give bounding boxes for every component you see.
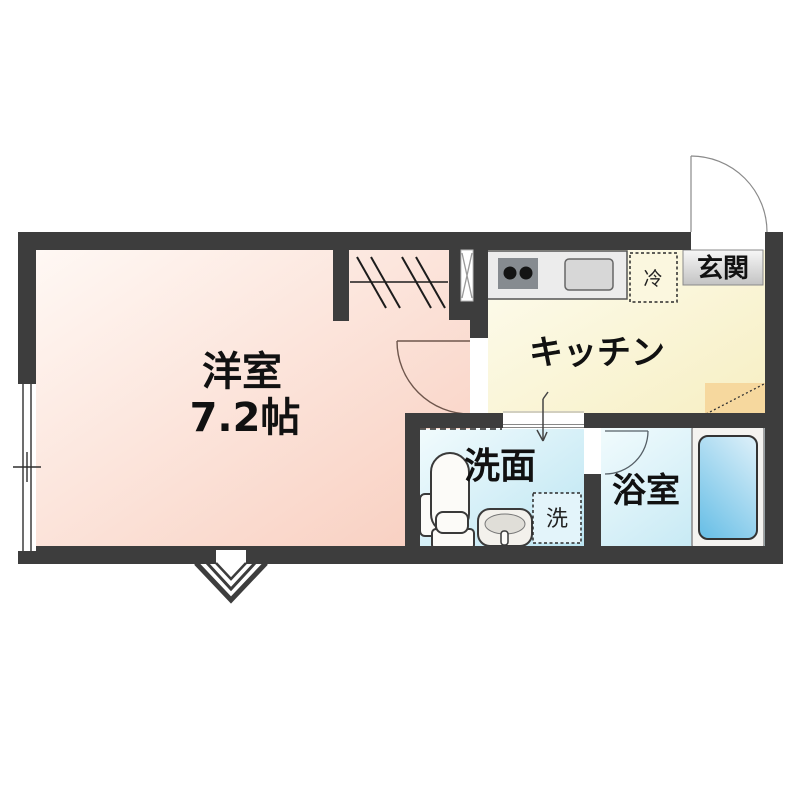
bathroom-label: 浴室 [612, 471, 680, 511]
western-room-size-label: 7.2帖 [190, 395, 301, 441]
refrigerator-label: 冷 [643, 268, 662, 290]
burner-icon [504, 267, 517, 280]
washroom-label: 洗面 [464, 446, 536, 487]
washing-machine-label: 洗 [546, 507, 568, 532]
floor-plan-canvas: 洋室 7.2帖 キッチン 玄関 洗面 浴室 冷 洗 [0, 0, 800, 800]
entrance-step-floor [705, 383, 765, 415]
burner-icon [520, 267, 533, 280]
floor-plan-drawing: 洋室 7.2帖 キッチン 玄関 洗面 浴室 冷 洗 [0, 0, 800, 800]
kitchen-label: キッチン [529, 333, 665, 373]
washbasin-icon [478, 509, 532, 546]
bathtub-icon [692, 427, 764, 547]
kitchen-sink-icon [565, 259, 613, 290]
kitchen-counter [485, 251, 627, 299]
pipe-space-brace [461, 250, 473, 301]
western-room-label: 洋室 [202, 349, 282, 395]
entrance-label: 玄関 [697, 253, 749, 284]
entrance-door-swing [691, 156, 767, 232]
